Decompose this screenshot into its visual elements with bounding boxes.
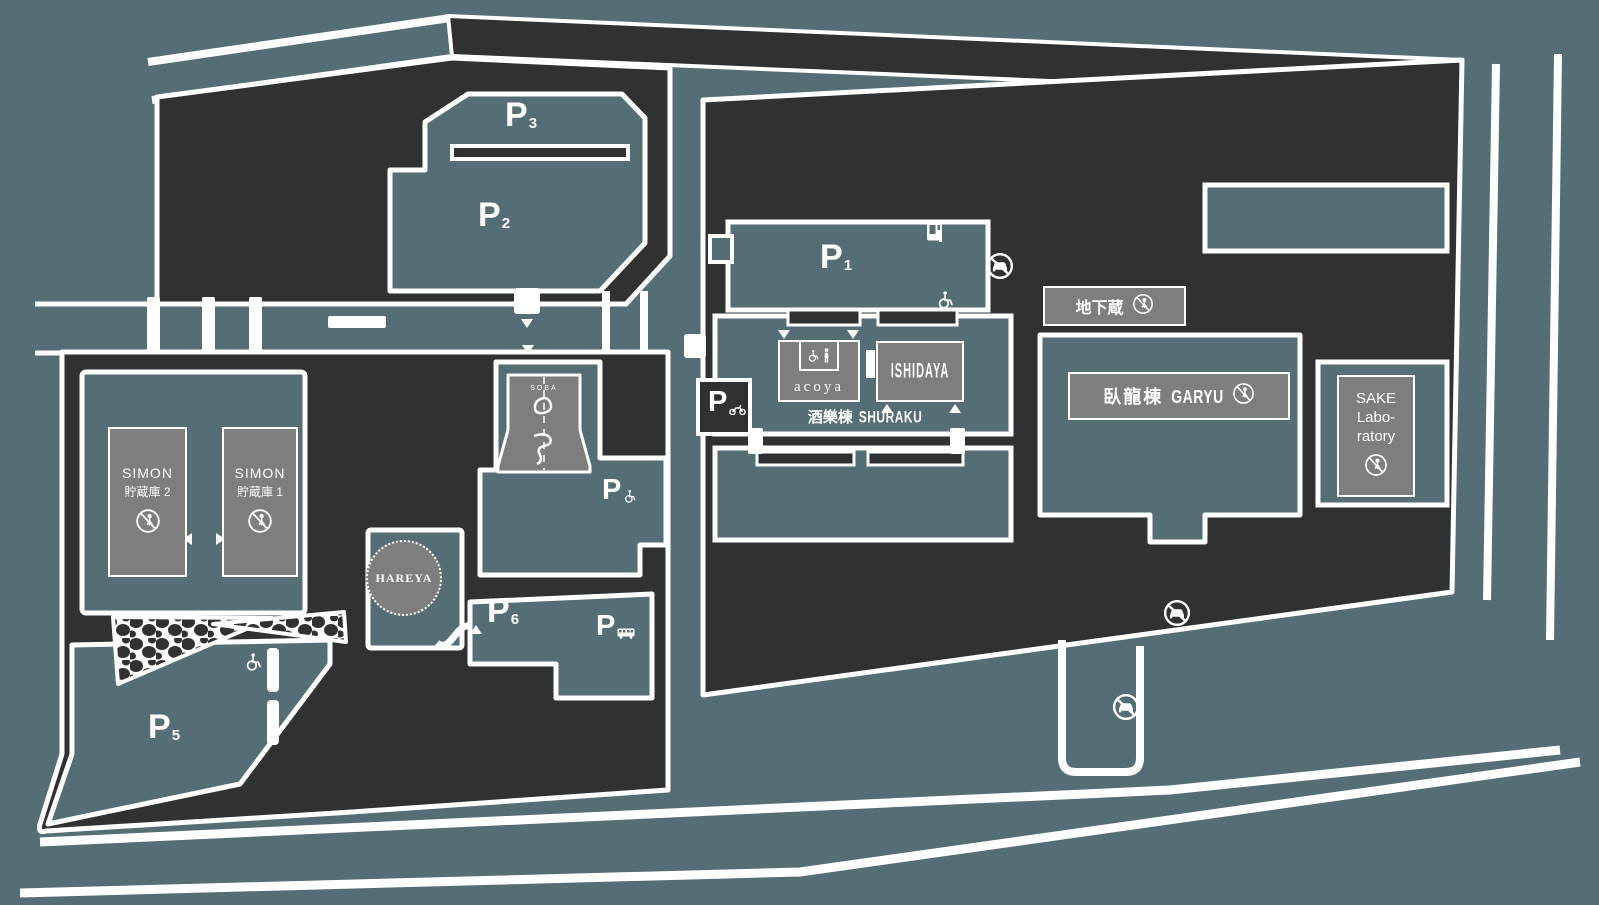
- no-cars-icon: [1163, 599, 1191, 632]
- building-name-en: GARYU: [1171, 385, 1224, 407]
- no-entry-person-icon: [1232, 382, 1255, 410]
- label-p-bus: P: [596, 612, 635, 641]
- building-name-jp: 臥龍棟: [1103, 383, 1163, 409]
- wheelchair-icon: [623, 489, 637, 503]
- building-soba-label: SOBA: [514, 385, 574, 392]
- building-hareya: HAREYA: [366, 540, 442, 616]
- road-connector: [202, 297, 215, 357]
- road-connector: [249, 297, 262, 357]
- building-floor: 貯蔵庫 2: [124, 483, 170, 500]
- garyu-area: [1040, 335, 1300, 542]
- building-name-line: SAKE: [1356, 390, 1396, 409]
- no-entry-person-icon: [135, 508, 161, 539]
- road-connector: [147, 297, 160, 357]
- vending-machine-icon: [926, 222, 943, 247]
- arrow-down-icon: [521, 319, 533, 328]
- road-corridor-line: [640, 291, 648, 359]
- no-entry-person-icon: [1364, 453, 1388, 482]
- wheelchair-icon: [936, 290, 955, 314]
- road-marking: [328, 316, 386, 328]
- parking-divider: [788, 310, 860, 325]
- wheelchair-icon: [244, 652, 263, 676]
- east-road-line-1: [1487, 64, 1496, 600]
- label-p3: P3: [505, 98, 537, 132]
- parking-divider: [757, 452, 854, 465]
- no-cars-icon: [986, 252, 1014, 285]
- parking-divider: [868, 452, 963, 465]
- no-cars-icon: [1112, 693, 1140, 726]
- building-name: SIMON: [122, 465, 173, 481]
- building-simon-1: SIMON 貯蔵庫 1: [222, 427, 298, 577]
- building-acoya: acoya: [778, 340, 860, 402]
- lot-p1-step: [710, 236, 732, 262]
- label-p-accessible: P: [602, 476, 637, 505]
- building-chikagura: 地下蔵: [1043, 286, 1186, 326]
- p2-entrance: [514, 288, 540, 314]
- p3-divider-bar: [452, 146, 628, 159]
- building-floor: 貯蔵庫 1: [237, 483, 283, 500]
- site-map: P3 P2 P1 P5 P6 P P P SIMON 貯蔵庫 2 SIMON 貯…: [0, 0, 1599, 905]
- no-entry-person-icon: [1132, 293, 1154, 320]
- label-p5: P5: [148, 710, 180, 744]
- label-p1: P1: [820, 240, 852, 274]
- building-name: ISHIDAYA: [891, 360, 950, 383]
- building-name: HAREYA: [376, 571, 433, 586]
- building-name: 地下蔵: [1075, 294, 1123, 318]
- building-garyu: 臥龍棟 GARYU: [1068, 372, 1290, 420]
- label-shuraku: 酒樂棟 SHURAKU: [790, 406, 940, 427]
- label-p2: P2: [478, 198, 510, 232]
- label-p6: P6: [487, 594, 519, 628]
- building-sake-laboratory: SAKE Labo- ratory: [1337, 375, 1415, 497]
- building-name: acoya: [794, 379, 844, 396]
- north-east-band: [1205, 185, 1447, 251]
- top-road-line-1: [148, 18, 450, 62]
- motorcycle-icon: [729, 404, 746, 415]
- road-corridor-line: [602, 291, 610, 359]
- building-ishidaya: ISHIDAYA: [876, 341, 964, 402]
- building-divider: [866, 350, 875, 378]
- building-simon-2: SIMON 貯蔵庫 2: [108, 427, 187, 577]
- p5-fence: [267, 700, 279, 745]
- p5-fence: [267, 648, 279, 692]
- east-road-line-2: [1550, 54, 1558, 640]
- label-p-motorcycle: P: [708, 388, 746, 417]
- building-name: SIMON: [235, 465, 286, 481]
- building-name-line: ratory: [1357, 428, 1395, 447]
- yard-connector: [950, 428, 965, 454]
- road-connector: [684, 334, 706, 358]
- no-entry-person-icon: [247, 508, 273, 539]
- bus-icon: [617, 628, 635, 639]
- accessible-toilet-icon: [799, 340, 839, 371]
- building-name-line: Labo-: [1357, 409, 1395, 428]
